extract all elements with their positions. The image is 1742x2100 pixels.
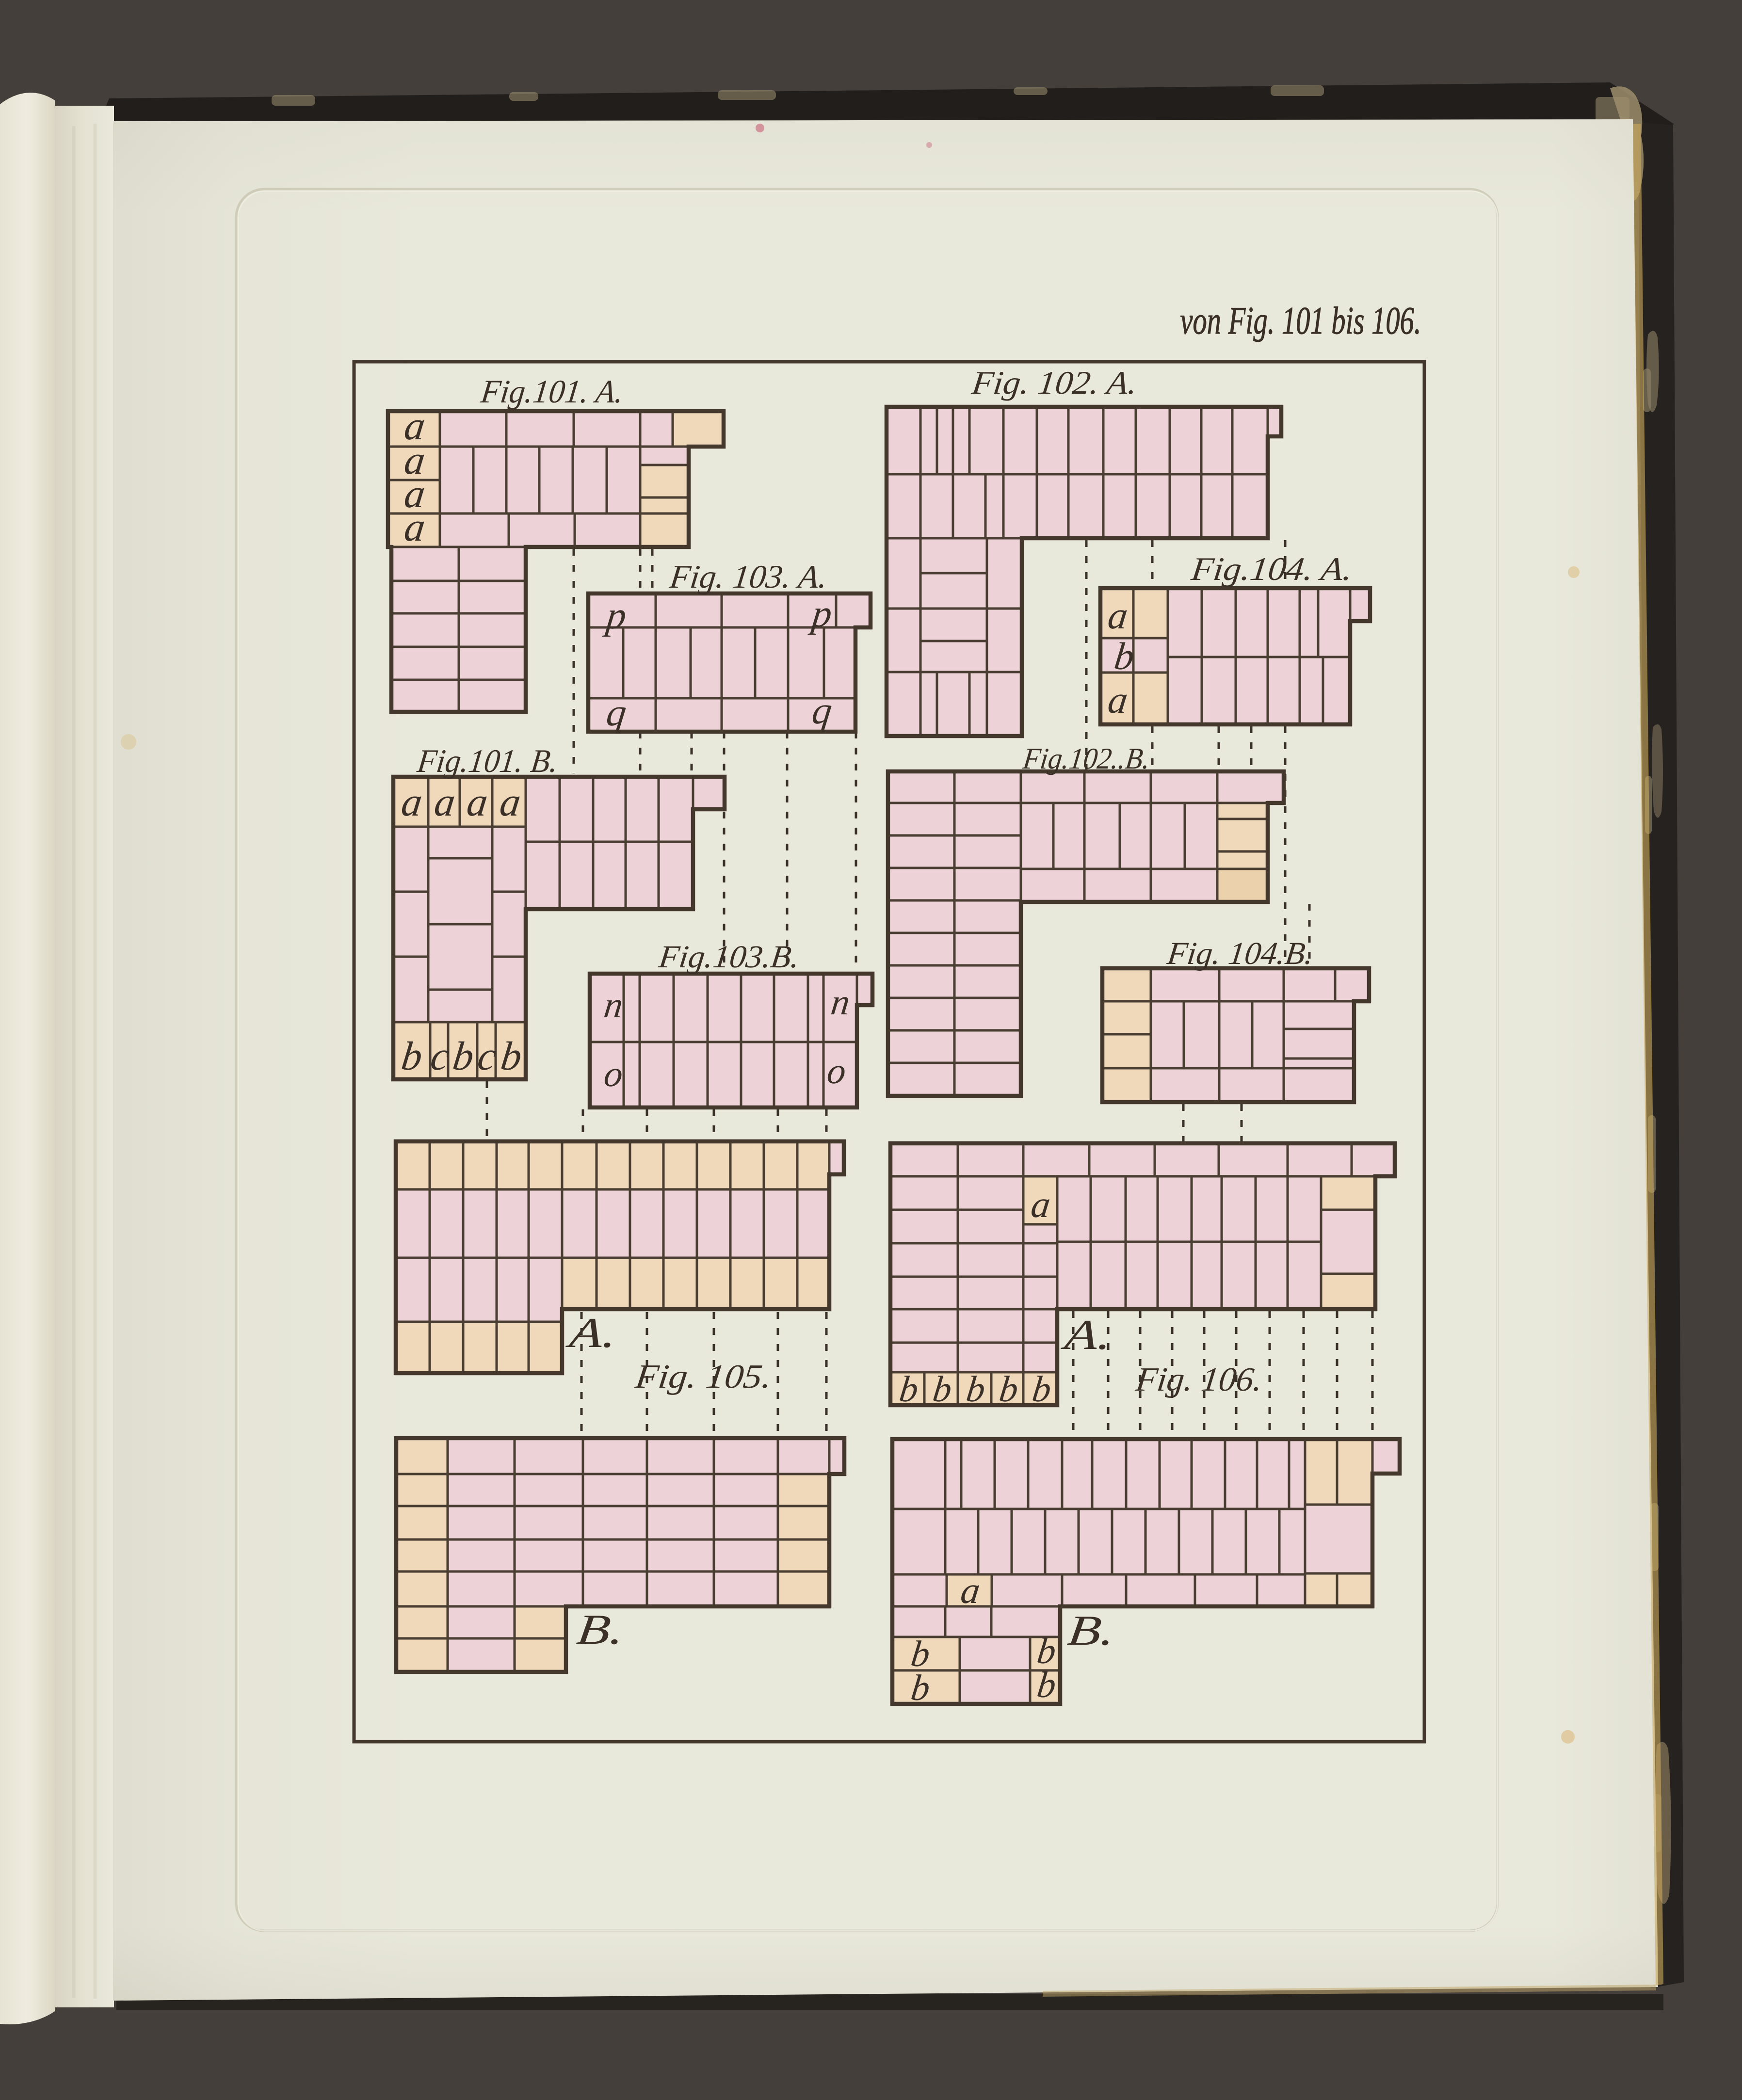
- svg-text:Fig.101. A.: Fig.101. A.: [479, 373, 626, 410]
- svg-text:Fig. 103. A.: Fig. 103. A.: [667, 558, 829, 595]
- svg-text:von Fig. 101 bis 106.: von Fig. 101 bis 106.: [1180, 300, 1421, 342]
- svg-text:Fig.103.B.: Fig.103.B.: [657, 939, 802, 975]
- svg-text:B.: B.: [575, 1606, 627, 1653]
- svg-text:Fig.104. A.: Fig.104. A.: [1189, 550, 1355, 587]
- svg-text:Fig. 105.: Fig. 105.: [633, 1358, 774, 1395]
- svg-text:Fig. 102. A.: Fig. 102. A.: [969, 364, 1139, 401]
- svg-text:Fig. 104.B.: Fig. 104.B.: [1165, 936, 1315, 971]
- svg-text:B.: B.: [1065, 1607, 1118, 1654]
- svg-text:Fig.102..B.: Fig.102..B.: [1021, 742, 1152, 775]
- svg-text:Fig.101. B.: Fig.101. B.: [415, 742, 560, 779]
- svg-text:Fig. 106.: Fig. 106.: [1133, 1361, 1265, 1398]
- svg-text:A.: A.: [1059, 1311, 1114, 1359]
- svg-text:A.: A.: [564, 1309, 619, 1357]
